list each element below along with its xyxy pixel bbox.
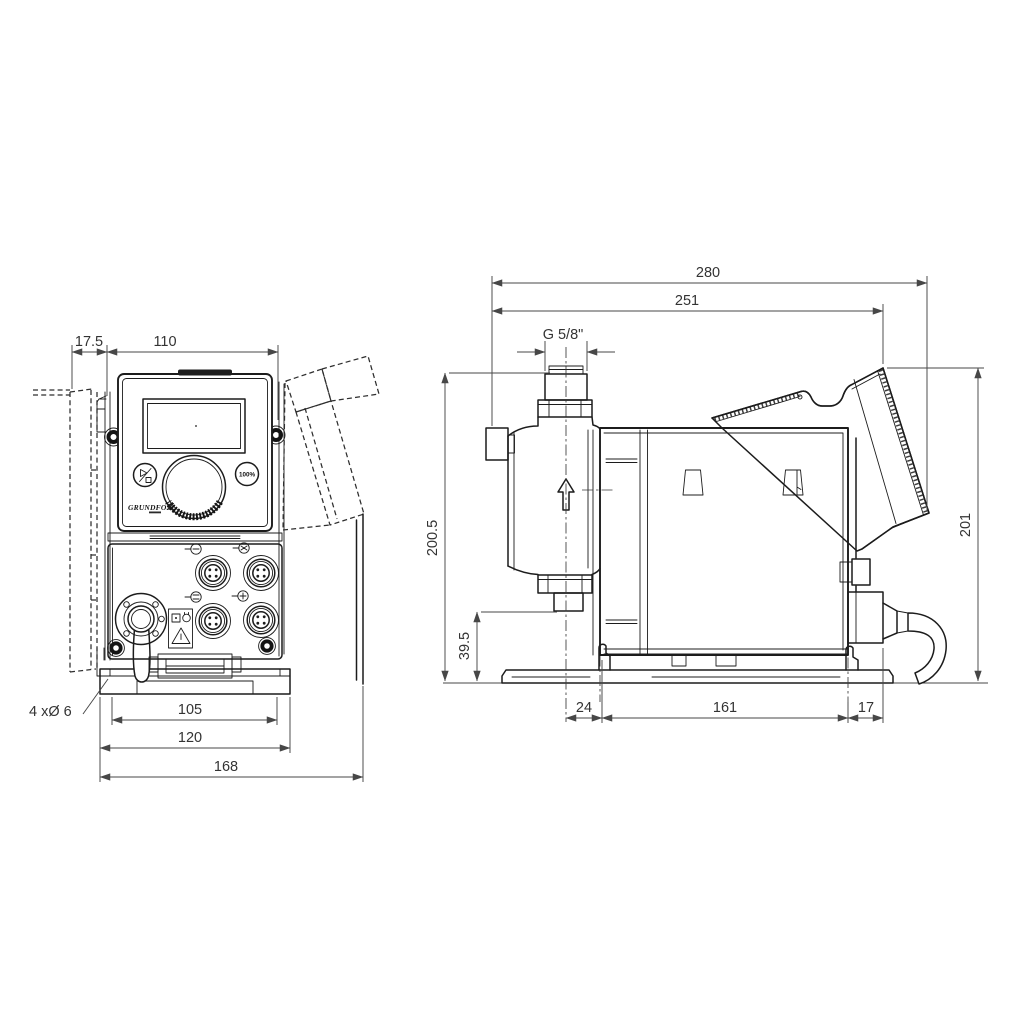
mount-holes-note-label: 4 xØ 6 [29,704,72,720]
brand-logo: GRUNDFOS [128,503,174,513]
panel-top-tab [178,370,232,376]
dim-overall-depth-label: 280 [696,265,720,281]
dim-connection-height-label: 39.5 [457,632,473,660]
dim-panel-width-label: 110 [153,334,176,350]
dim-housing-length-label: 161 [713,700,737,716]
dim-overall-height-label: 200.5 [425,520,441,556]
dim-hole-spacing-label: 105 [178,702,202,718]
dim-offset-top-label: 17.5 [75,334,103,350]
technical-drawing-page: 100% GRUNDFOS 17.5 [0,0,1024,1024]
control-panel: 100% GRUNDFOS [118,370,272,532]
dim-head-offset-label: 24 [576,700,592,716]
hundred-percent-label: 100% [239,472,256,479]
dosing-pump-dimensional-drawing: 100% GRUNDFOS 17.5 [0,0,1024,1024]
power-cable-front [133,629,150,682]
dim-overall-width-label: 168 [214,759,238,775]
dim-bracket-width-label: 120 [178,730,202,746]
brand-logo-text: GRUNDFOS [128,503,171,512]
dim-depth-to-panel-label: 251 [675,293,699,309]
dim-rear-offset-label: 17 [858,700,874,716]
dim-connection-thread-label: G 5/8" [543,327,584,343]
dim-panel-top-height-label: 201 [958,513,974,537]
